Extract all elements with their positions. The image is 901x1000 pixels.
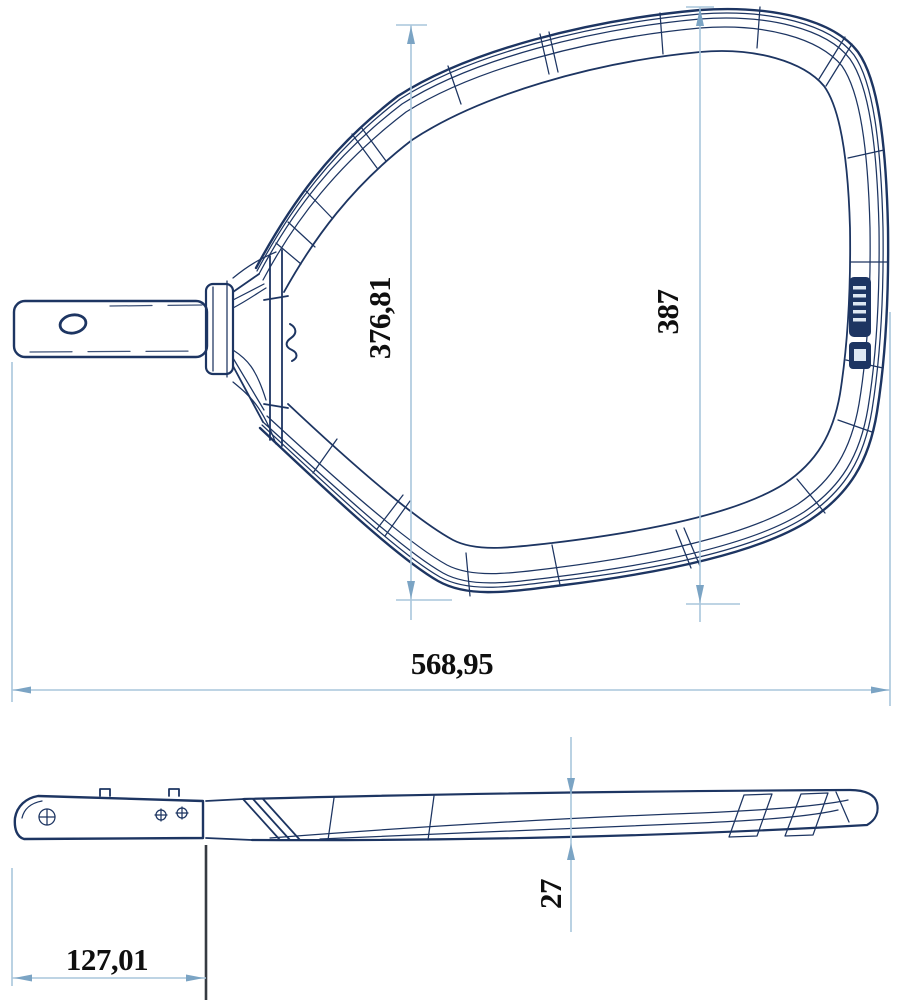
side-transition-hatches: [206, 799, 300, 840]
side-handle-tabs: [100, 789, 179, 796]
dimension-line: [396, 25, 452, 620]
dimension-handle-length: 127,01: [12, 845, 206, 1000]
dimension-line: [686, 7, 740, 622]
handle-hole: [59, 313, 88, 335]
frame-contour-4: [263, 27, 870, 574]
dimension-frame-height: 387: [650, 7, 740, 622]
arrow-up-icon: [407, 26, 415, 44]
dimension-label: 27: [533, 879, 568, 909]
screw-cross-icon: [39, 807, 188, 825]
dimension-overall-length: 568,95: [12, 312, 890, 706]
dimension-label: 568,95: [411, 646, 493, 681]
arrow-down-icon: [696, 585, 704, 603]
dimension-label: 376,81: [362, 277, 397, 359]
handle-surface-lines: [30, 305, 202, 352]
side-blade-joints: [328, 792, 849, 840]
clamp-socket: [206, 284, 233, 374]
arrow-right-icon: [186, 975, 204, 982]
arrow-left-icon: [14, 975, 32, 982]
dimension-label: 127,01: [66, 942, 148, 977]
dimensions: 376,81 387 568,95 27: [12, 7, 890, 1000]
dimension-label: 387: [650, 290, 685, 335]
clamp-socket-lines: [213, 281, 227, 377]
frame-outer-contour: [256, 9, 888, 592]
handle-tube: [14, 301, 207, 357]
top-view: [14, 7, 888, 596]
side-blade-groove-lower: [320, 810, 838, 839]
drawing-svg: 376,81 387 568,95 27: [0, 0, 901, 1000]
arrow-down-icon: [407, 581, 415, 599]
arrow-up-icon: [567, 843, 575, 860]
arrow-left-icon: [13, 687, 31, 694]
logo-mark: [287, 324, 297, 361]
dimension-profile-thickness: 27: [533, 737, 575, 932]
side-view: [15, 789, 878, 840]
arrow-right-icon: [871, 687, 889, 694]
technical-drawing: 376,81 387 568,95 27: [0, 0, 901, 1000]
brand-badge: [849, 277, 871, 369]
frame-contour-3: [259, 18, 879, 583]
